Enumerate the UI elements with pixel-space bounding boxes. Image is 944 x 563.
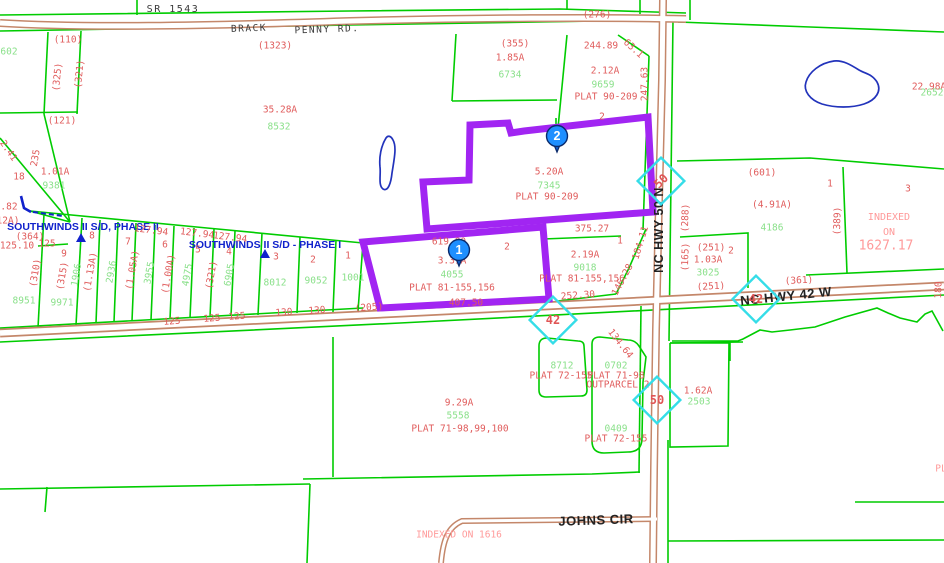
subdivision-triangle-icon — [76, 233, 86, 242]
map-pin-1[interactable]: 1 — [449, 240, 470, 267]
highway-shield-42: 42 — [733, 276, 780, 323]
svg-text:2: 2 — [554, 129, 561, 143]
svg-text:1: 1 — [456, 243, 463, 257]
svg-text:42: 42 — [546, 313, 560, 327]
map-pin-2[interactable]: 2 — [547, 126, 568, 153]
map-canvas[interactable]: SR 1543BRACKPENNY RD.NC HWY 50 NNC HWY 4… — [0, 0, 944, 563]
map-overlay-layer: 4250425012 — [0, 0, 944, 563]
subdivision-triangle-icon — [260, 249, 270, 258]
svg-text:42: 42 — [749, 292, 763, 306]
highway-shield-42: 42 — [530, 297, 577, 344]
svg-text:50: 50 — [651, 171, 671, 191]
svg-text:50: 50 — [650, 393, 664, 407]
highway-shield-50: 50 — [638, 158, 685, 205]
highway-shield-50: 50 — [634, 377, 681, 424]
